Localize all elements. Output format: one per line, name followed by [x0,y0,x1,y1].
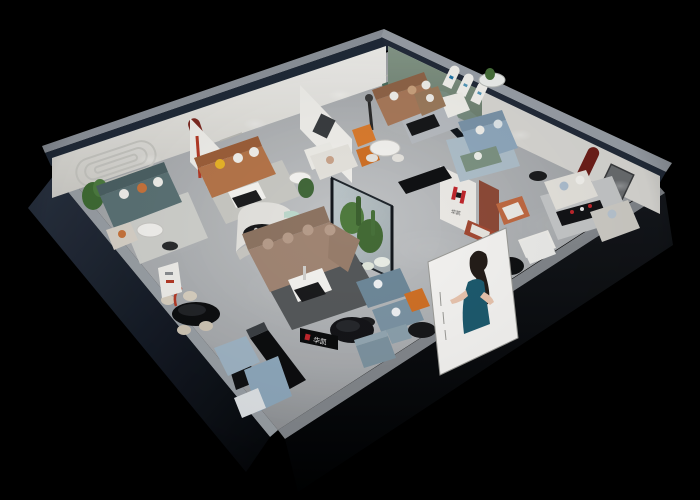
vignette-overlay [0,0,700,500]
showroom-svg: 华凯 [0,0,700,500]
showroom-render: 华凯 [0,0,700,500]
